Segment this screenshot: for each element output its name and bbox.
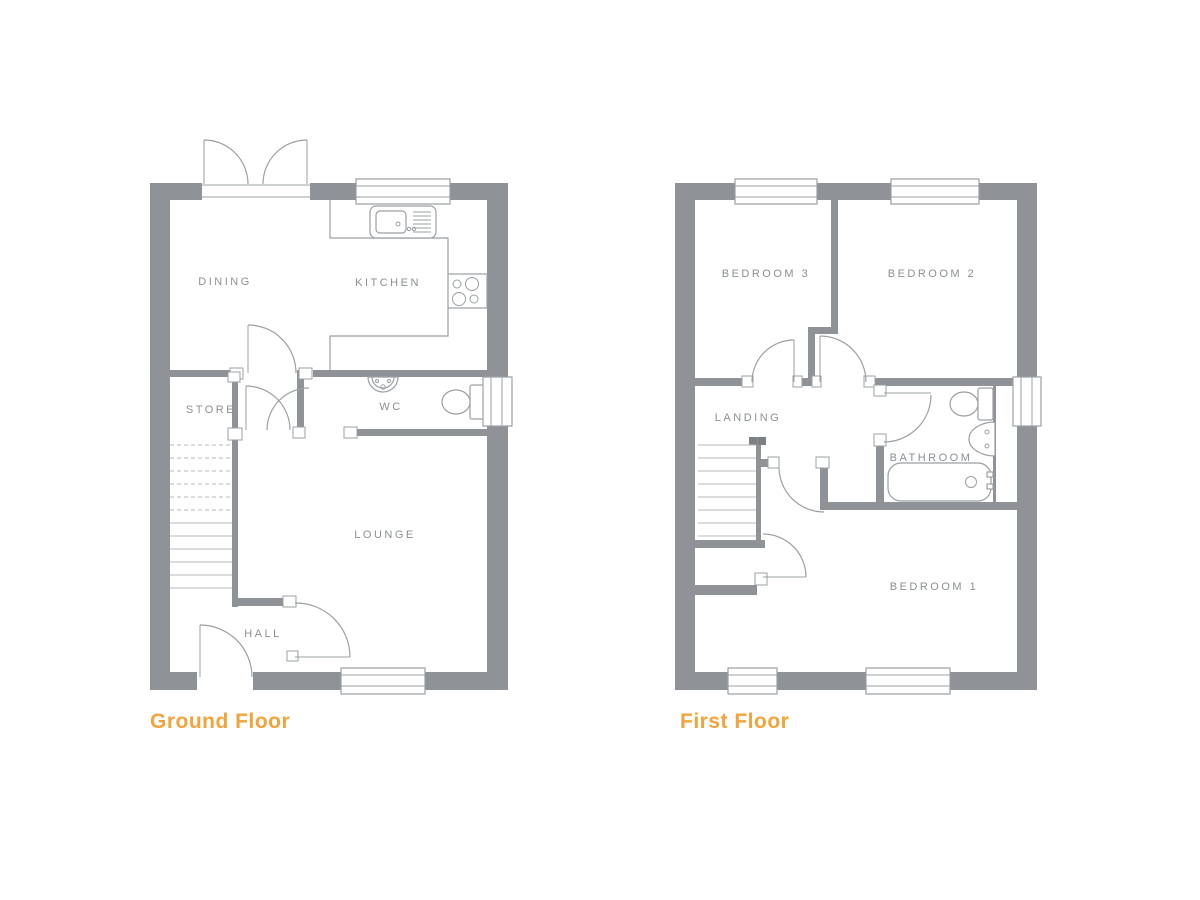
landing-window-icon bbox=[728, 668, 777, 694]
wc-toilet-icon bbox=[442, 385, 486, 419]
bedroom1-window-icon bbox=[866, 668, 950, 694]
ground-windows bbox=[341, 179, 512, 694]
lounge-window-icon bbox=[341, 668, 425, 694]
first-staircase-icon bbox=[698, 445, 756, 536]
bathroom-basin-icon bbox=[969, 422, 995, 456]
kitchen-window-icon bbox=[356, 179, 450, 204]
bathroom-door-icon bbox=[884, 393, 931, 442]
room-label-bedroom3: BEDROOM 3 bbox=[722, 268, 811, 280]
floor-plan-canvas: DINING KITCHEN STORE WC LOUNGE HALL Grou… bbox=[0, 0, 1200, 900]
room-label-wc: WC bbox=[379, 401, 402, 413]
lounge-door-icon bbox=[295, 603, 350, 657]
wc-basin-icon bbox=[368, 377, 398, 392]
room-label-kitchen: KITCHEN bbox=[355, 277, 421, 289]
room-label-bedroom1: BEDROOM 1 bbox=[890, 581, 979, 593]
ground-floor-plan: DINING KITCHEN STORE WC LOUNGE HALL Grou… bbox=[150, 140, 512, 733]
bedroom2-window-icon bbox=[891, 179, 979, 204]
room-label-bathroom: BATHROOM bbox=[890, 452, 973, 464]
kitchen-sink-icon bbox=[370, 206, 436, 238]
room-label-lounge: LOUNGE bbox=[354, 529, 415, 541]
room-label-store: STORE bbox=[186, 404, 236, 416]
bathroom-toilet-icon bbox=[950, 388, 993, 420]
cupboard-door-icon bbox=[763, 534, 806, 577]
bath-icon bbox=[888, 463, 993, 501]
bedroom3-door-icon bbox=[752, 340, 794, 382]
first-door-jambs bbox=[742, 376, 886, 585]
wc-window-icon bbox=[483, 377, 512, 426]
ground-staircase-icon bbox=[170, 445, 232, 588]
first-floor-plan: BEDROOM 3 BEDROOM 2 LANDING BATHROOM BED… bbox=[675, 179, 1041, 733]
room-label-hall: HALL bbox=[244, 628, 282, 640]
french-doors-icon bbox=[202, 140, 310, 197]
dining-door-icon bbox=[248, 325, 296, 373]
room-label-dining: DINING bbox=[198, 276, 252, 288]
bedroom1-door-icon bbox=[779, 467, 824, 512]
bedroom3-window-icon bbox=[735, 179, 817, 204]
room-label-landing: LANDING bbox=[715, 412, 781, 424]
hob-icon bbox=[448, 274, 487, 308]
bedroom2-door-icon bbox=[820, 336, 866, 382]
ground-floor-title: Ground Floor bbox=[150, 710, 290, 733]
room-label-bedroom2: BEDROOM 2 bbox=[888, 268, 977, 280]
first-floor-title: First Floor bbox=[680, 710, 789, 733]
bathroom-window-icon bbox=[1013, 377, 1041, 426]
ground-door-jambs bbox=[228, 368, 357, 661]
